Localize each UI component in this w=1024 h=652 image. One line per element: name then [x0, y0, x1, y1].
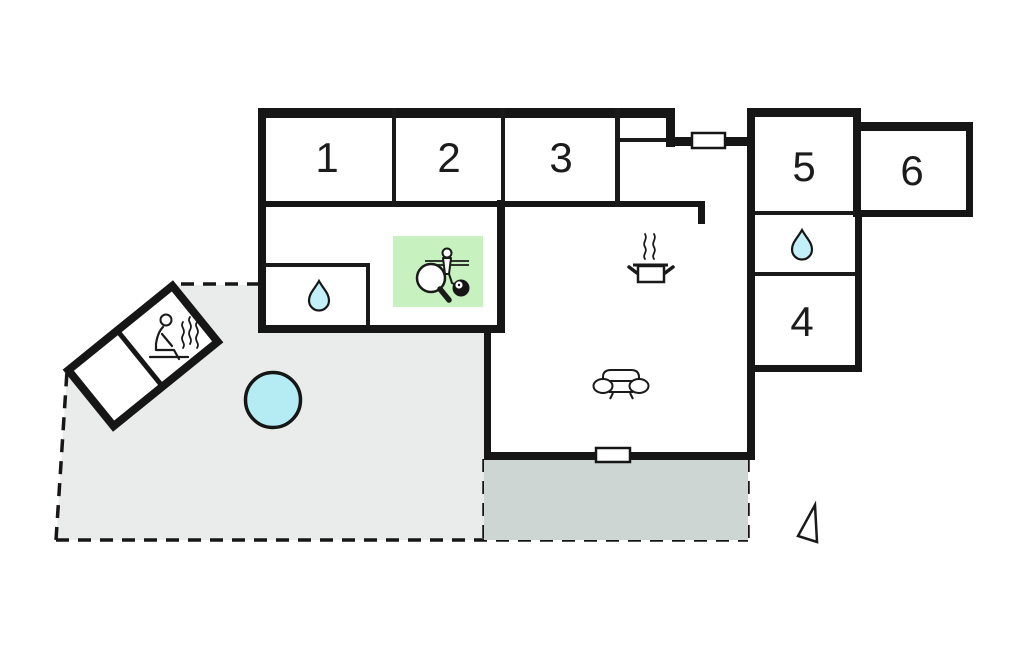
- room-label-1: 1: [315, 134, 338, 181]
- billiard-ball-icon: [453, 280, 470, 297]
- floor-plan-drawing: 1 2 3 4 5 6: [0, 0, 1024, 652]
- floor-plan-page: 1 2 3 4 5 6: [0, 0, 1024, 652]
- room-label-5: 5: [792, 143, 815, 190]
- room-label-2: 2: [437, 134, 460, 181]
- window-icon: [692, 133, 725, 148]
- room-label-4: 4: [790, 298, 813, 345]
- terrace: [484, 459, 748, 540]
- window-icon: [596, 448, 630, 462]
- north-arrow-icon: [798, 505, 817, 542]
- pool-icon: [246, 373, 301, 428]
- room-label-6: 6: [900, 147, 923, 194]
- room-label-3: 3: [549, 134, 572, 181]
